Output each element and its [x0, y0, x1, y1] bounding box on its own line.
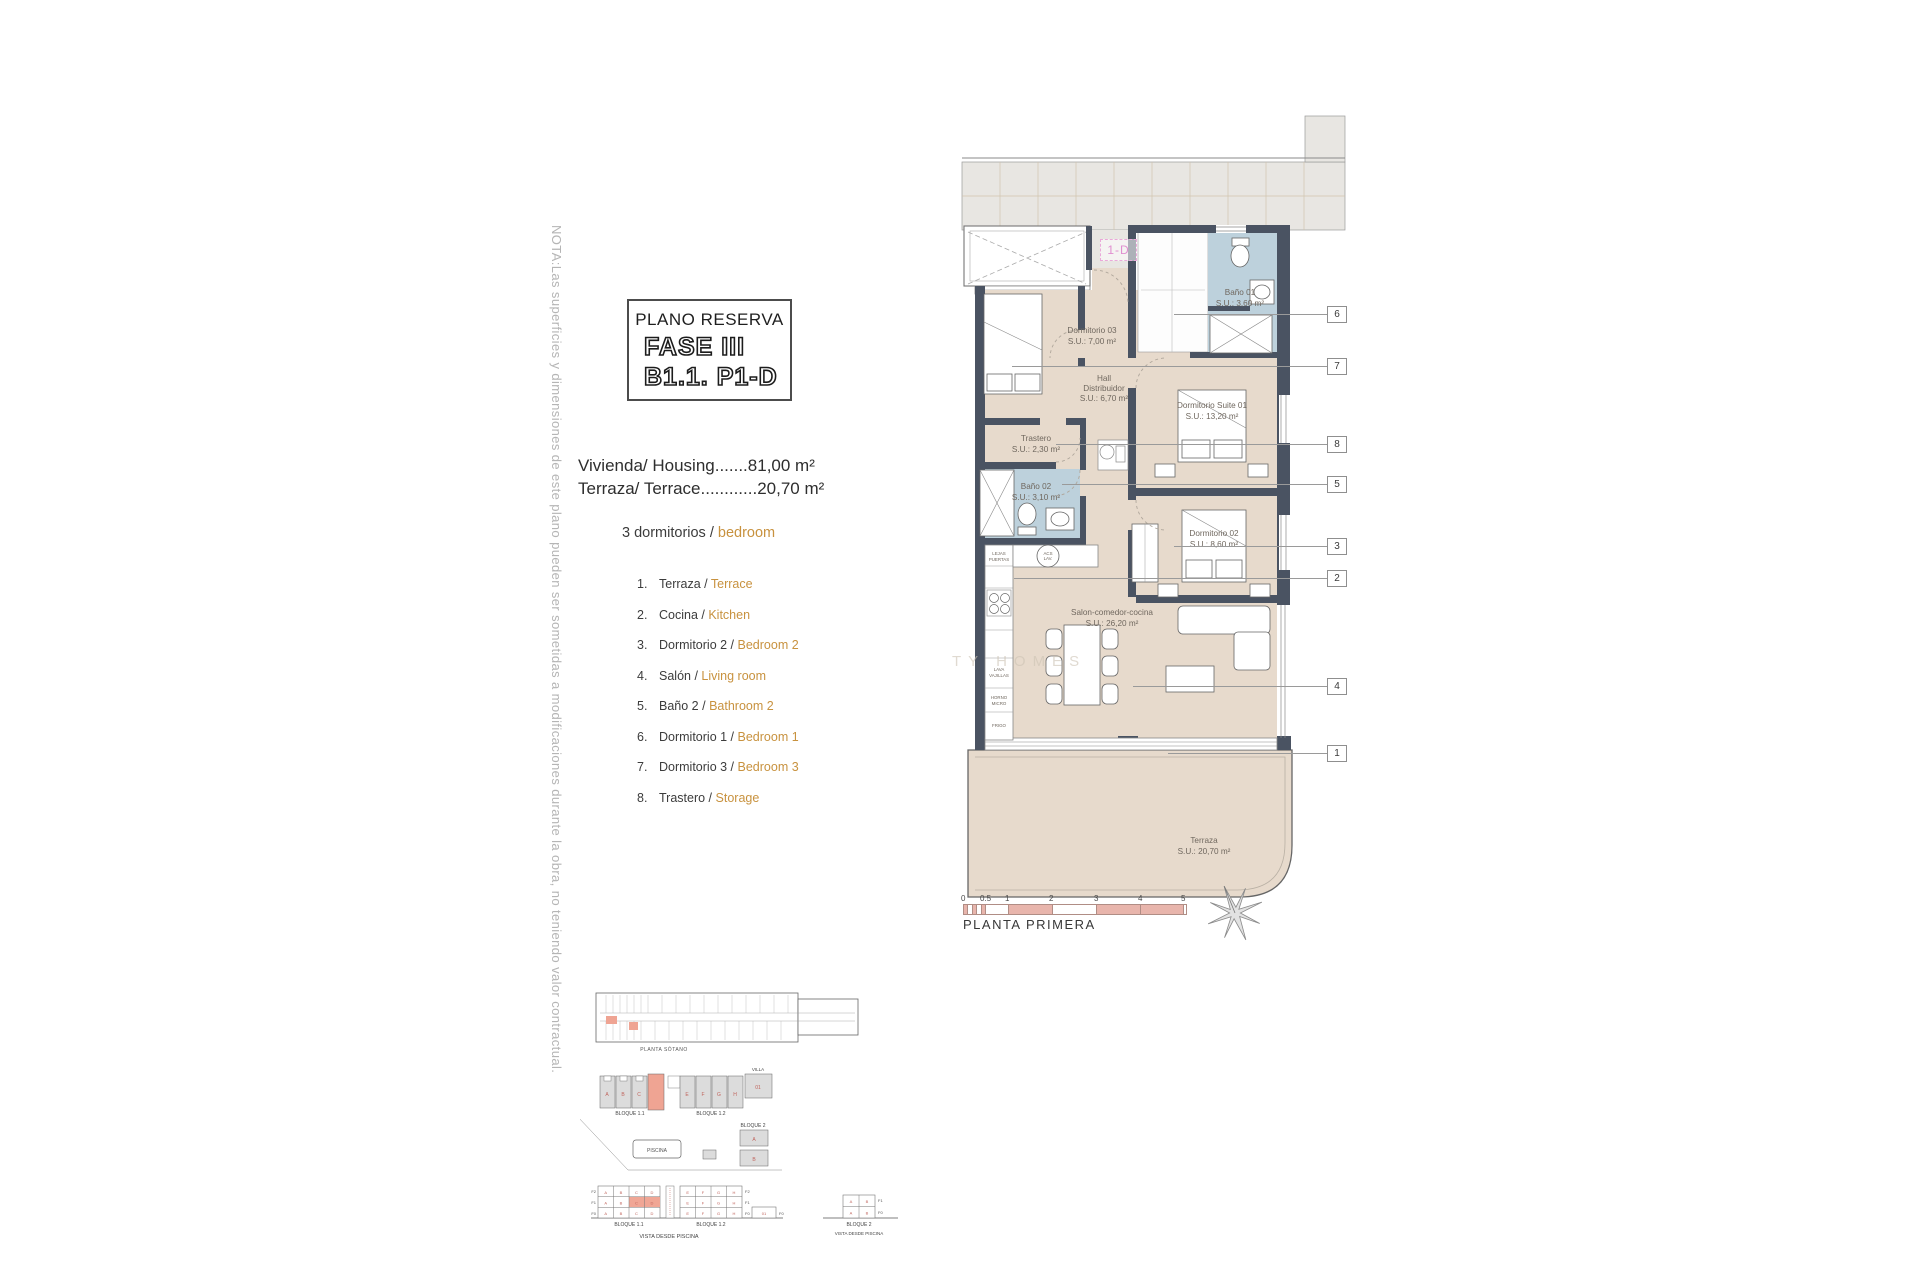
cooktop-icon — [987, 590, 1011, 616]
room-area: S.U.: 13,20 m² — [1186, 412, 1239, 421]
callout-7: 7 — [1327, 358, 1347, 375]
sink-icon — [1046, 508, 1074, 530]
floor-plan-drawing: TY HOMES Dormitorio 03 S.U.: 7,00 m² Hal… — [950, 108, 1350, 908]
room-label: Terraza — [1190, 836, 1218, 845]
site-plans: PLANTA SÓTANO A B C BLOQUE 1.1 — [580, 985, 920, 1265]
scale-bar-strip — [963, 904, 1187, 915]
svg-text:A: A — [850, 1211, 853, 1216]
scale-bar: 0 0.5 1 2 3 4 5 PLANTA PRIMERA — [963, 894, 1203, 940]
shower-icon — [1210, 315, 1272, 353]
svg-text:B: B — [866, 1211, 869, 1216]
appliance-label: FRIGO — [992, 723, 1006, 728]
leader-line — [1062, 484, 1327, 485]
svg-text:G: G — [717, 1211, 720, 1216]
leader-line — [1056, 444, 1327, 445]
room-area: S.U.: 2,30 m² — [1012, 445, 1061, 454]
unit-title: B1.1. P1-D — [644, 363, 790, 393]
legend-item: 3.Dormitorio 2 / Bedroom 2 — [637, 638, 799, 669]
svg-text:BLOQUE 2: BLOQUE 2 — [740, 1123, 765, 1129]
svg-text:G: G — [717, 1092, 721, 1098]
svg-text:B: B — [620, 1211, 623, 1216]
svg-text:B: B — [620, 1201, 623, 1206]
svg-text:F1: F1 — [878, 1198, 883, 1203]
callout-5: 5 — [1327, 476, 1347, 493]
room-label: Baño 01 — [1225, 288, 1256, 297]
view-caption: VISTA DESDE PISCINA — [639, 1234, 699, 1240]
svg-text:01: 01 — [755, 1085, 761, 1091]
svg-text:C: C — [637, 1092, 641, 1098]
svg-text:E: E — [686, 1201, 689, 1206]
svg-text:F2: F2 — [745, 1189, 750, 1194]
callout-2: 2 — [1327, 570, 1347, 587]
toilet-icon — [1018, 503, 1036, 535]
basement-label: PLANTA SÓTANO — [640, 1046, 687, 1053]
svg-text:A: A — [850, 1199, 853, 1204]
suite-wardrobe-area — [1138, 232, 1208, 352]
svg-text:VISTA DESDE PISCINA: VISTA DESDE PISCINA — [835, 1231, 883, 1236]
room-label: Baño 02 — [1021, 482, 1052, 491]
phase-title: FASE III — [644, 333, 790, 363]
wardrobe-icon — [1132, 524, 1158, 582]
svg-text:F: F — [701, 1092, 704, 1098]
room-area: S.U.: 8,60 m² — [1190, 540, 1239, 549]
highlighted-unit — [648, 1074, 664, 1110]
floor-title: PLANTA PRIMERA — [963, 917, 1096, 932]
svg-text:F1: F1 — [745, 1200, 750, 1205]
svg-text:H: H — [733, 1211, 736, 1216]
svg-text:BLOQUE 1.2: BLOQUE 1.2 — [696, 1222, 725, 1228]
svg-text:01: 01 — [762, 1211, 767, 1216]
svg-text:F0: F0 — [878, 1210, 883, 1215]
legend-item: 4.Salón / Living room — [637, 669, 799, 700]
pool-label: PISCINA — [647, 1148, 668, 1154]
svg-text:F1: F1 — [591, 1200, 596, 1205]
svg-text:H: H — [733, 1092, 737, 1098]
svg-text:H: H — [733, 1190, 736, 1195]
appliance-label: VAJILLAS — [989, 673, 1009, 678]
room-label: Dormitorio 02 — [1189, 529, 1239, 538]
legend-item: 5.Baño 2 / Bathroom 2 — [637, 699, 799, 730]
bedroom-count: 3 dormitorios / bedroom — [622, 525, 775, 541]
svg-text:A: A — [604, 1190, 607, 1195]
legend-item: 8.Trastero / Storage — [637, 791, 799, 822]
area-summary: Vivienda/ Housing.......81,00 m² Terraza… — [578, 454, 824, 500]
svg-text:D: D — [651, 1201, 654, 1206]
toilet-icon — [1231, 238, 1249, 267]
room-legend: 1.Terraza / Terrace 2.Cocina / Kitchen 3… — [637, 577, 799, 821]
room-label: Trastero — [1021, 434, 1052, 443]
svg-text:E: E — [686, 1211, 689, 1216]
svg-text:F0: F0 — [745, 1211, 750, 1216]
room-label: Dormitorio 03 — [1067, 326, 1117, 335]
leader-line — [1174, 314, 1327, 315]
svg-text:C: C — [635, 1201, 638, 1206]
coffee-table-icon — [1166, 666, 1214, 692]
svg-text:BLOQUE 1.1: BLOQUE 1.1 — [615, 1111, 644, 1117]
svg-text:B: B — [866, 1199, 869, 1204]
svg-text:C: C — [635, 1190, 638, 1195]
shower-icon — [980, 470, 1014, 536]
bed-icon — [984, 294, 1042, 394]
legend-item: 7.Dormitorio 3 / Bedroom 3 — [637, 760, 799, 791]
watermark: TY HOMES — [952, 653, 1086, 670]
leader-line — [1014, 578, 1327, 579]
appliance-label: HORNO — [991, 695, 1008, 700]
svg-text:VILLA: VILLA — [752, 1067, 764, 1072]
title-block: PLANO RESERVA FASE III B1.1. P1-D — [627, 299, 792, 401]
callout-6: 6 — [1327, 306, 1347, 323]
svg-text:F0: F0 — [591, 1211, 596, 1216]
leader-line — [1174, 546, 1327, 547]
basement-plan: PLANTA SÓTANO — [596, 993, 858, 1053]
svg-text:A: A — [604, 1211, 607, 1216]
stairs-icon — [964, 226, 1090, 294]
svg-text:E: E — [686, 1190, 689, 1195]
leader-line — [1168, 753, 1327, 754]
floor-plan-sheet: NOTA:Las superficies y dimensiones de es… — [0, 0, 1920, 1280]
room-area: S.U.: 3,60 m² — [1216, 299, 1265, 308]
site-layout: A B C BLOQUE 1.1 E F G H BLOQUE 1.2 VILL… — [580, 1063, 782, 1170]
svg-text:G: G — [717, 1201, 720, 1206]
callout-8: 8 — [1327, 436, 1347, 453]
callout-1: 1 — [1327, 745, 1347, 762]
appliance-label: LAV. — [1044, 556, 1053, 561]
room-label: Dormitorio Suite 01 — [1177, 401, 1248, 410]
room-label: Distribuidor — [1083, 384, 1125, 393]
svg-text:G: G — [717, 1190, 720, 1195]
svg-text:BLOQUE 1.2: BLOQUE 1.2 — [696, 1111, 725, 1117]
callout-3: 3 — [1327, 538, 1347, 555]
appliance-label: MICRO — [992, 701, 1007, 706]
room-area: S.U.: 3,10 m² — [1012, 493, 1061, 502]
svg-text:C: C — [635, 1211, 638, 1216]
room-label: Salon-comedor-cocina — [1071, 608, 1153, 617]
housing-area: Vivienda/ Housing.......81,00 m² — [578, 454, 824, 477]
appliance-label: LEJAS — [992, 551, 1005, 556]
terrace-area: Terraza/ Terrace............20,70 m² — [578, 477, 824, 500]
svg-text:BLOQUE 1.1: BLOQUE 1.1 — [614, 1222, 643, 1228]
svg-text:D: D — [651, 1190, 654, 1195]
svg-text:D: D — [651, 1211, 654, 1216]
svg-text:F0: F0 — [779, 1211, 784, 1216]
leader-line — [1012, 366, 1327, 367]
legend-item: 1.Terraza / Terrace — [637, 577, 799, 608]
disclaimer-note: NOTA:Las superficies y dimensiones de es… — [549, 225, 564, 1105]
svg-text:H: H — [733, 1201, 736, 1206]
room-area: S.U.: 6,70 m² — [1080, 394, 1129, 403]
appliance-label: LAVA — [994, 667, 1005, 672]
leader-line — [1133, 686, 1327, 687]
legend-item: 6.Dormitorio 1 / Bedroom 1 — [637, 730, 799, 761]
elevation-views: AB CD AB CD AB CD F2F1 F0 BLOQUE 1.1 — [591, 1186, 898, 1240]
legend-item: 2.Cocina / Kitchen — [637, 608, 799, 639]
plan-title: PLANO RESERVA — [629, 310, 790, 330]
svg-text:BLOQUE 2: BLOQUE 2 — [846, 1222, 871, 1228]
svg-text:F2: F2 — [591, 1189, 596, 1194]
room-area: S.U.: 26,20 m² — [1086, 619, 1139, 628]
svg-text:B: B — [620, 1190, 623, 1195]
room-area: S.U.: 20,70 m² — [1178, 847, 1231, 856]
terrace — [968, 750, 1292, 897]
room-label: Hall — [1097, 374, 1111, 383]
room-area: S.U.: 7,00 m² — [1068, 337, 1117, 346]
appliance-label: PUERTAS — [989, 557, 1009, 562]
compass-icon — [1205, 883, 1265, 943]
unit-tag: 1-D — [1100, 239, 1137, 261]
svg-text:A: A — [604, 1201, 607, 1206]
callout-4: 4 — [1327, 678, 1347, 695]
